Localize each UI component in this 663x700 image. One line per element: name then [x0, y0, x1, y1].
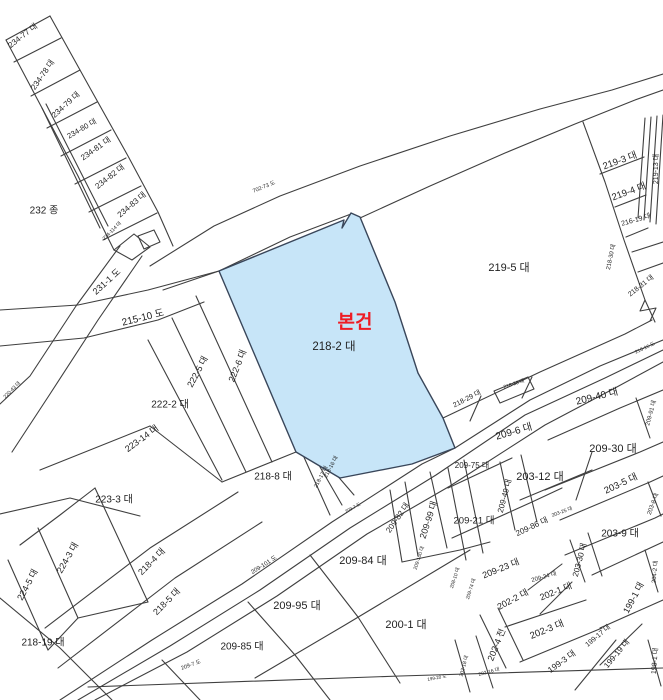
- parcel-label-224-3-대: 224-3 대: [55, 541, 81, 575]
- parcel-label-209-24-대: 209-24 대: [530, 569, 557, 584]
- parcel-label-209-85-대: 209-85 대: [220, 641, 263, 653]
- parcel-boundary: [150, 426, 222, 482]
- parcel-label-209-75-대: 209-75 대: [455, 461, 490, 470]
- parcel-label-204-2-대: 204-2 대: [650, 560, 660, 583]
- parcel-label-202-3-대: 202-3 대: [528, 618, 565, 642]
- cadastral-map-canvas: 본건218-2 대 234-77 대234-78 대234-79 대234-80…: [0, 0, 663, 700]
- parcel-label-209-23-대: 209-23 대: [481, 557, 521, 581]
- parcel-boundary: [583, 122, 655, 322]
- parcel-label-218-4-대: 218-4 대: [136, 546, 167, 577]
- parcel-label-209-6-대: 209-6 대: [494, 421, 533, 443]
- parcel-label-234-78-대: 234-78 대: [29, 58, 56, 91]
- parcel-label-218-30-대: 218-30 대: [604, 243, 617, 270]
- parcel-boundary: [0, 302, 204, 346]
- parcel-label-216-19-대: 216-19 대: [620, 212, 651, 228]
- parcel-label-222-5-대: 222-5 대: [185, 354, 210, 389]
- parcel-label-209-82-대: 209-82 대: [384, 501, 411, 534]
- parcel-label-218-19-대: 218-19 대: [21, 637, 64, 649]
- parcel-label-209-7-도: 209-7 도: [180, 658, 202, 672]
- parcel-label-702-73-도: 702-73 도: [252, 179, 277, 194]
- parcel-label-202-2-대: 202-2 대: [495, 587, 530, 612]
- parcel-label-219-3-대: 219-3 대: [601, 150, 638, 173]
- parcel-boundary: [443, 320, 652, 418]
- parcel-label-222-6-대: 222-6 대: [226, 348, 248, 383]
- parcel-boundary: [521, 455, 537, 522]
- parcel-label-208-10-대: 208-10 대: [448, 566, 461, 589]
- parcel-label-219-5-대: 219-5 대: [488, 261, 529, 274]
- parcel-label-234-81-대: 234-81 대: [79, 135, 112, 162]
- parcel-label-209-7-도: 209-7 도: [344, 502, 361, 514]
- parcel-boundary: [588, 533, 602, 576]
- parcel-boundary: [405, 482, 418, 556]
- subject-parcel-group: 본건218-2 대: [219, 213, 455, 478]
- parcel-label-209-30-대: 209-30 대: [589, 442, 636, 455]
- parcel-label-234-77-대: 234-77 대: [6, 22, 39, 50]
- parcel-label-223-14-대: 223-14 대: [123, 423, 160, 454]
- subject-parcel-number: 218-2 대: [312, 340, 355, 353]
- parcel-label-218-8-대: 218-8 대: [254, 471, 292, 483]
- parcel-label-219-4-대: 219-4 대: [610, 181, 647, 204]
- parcel-label-218-31-대: 218-31 대: [627, 273, 656, 298]
- parcel-label-200-1-대: 200-1 대: [385, 618, 426, 631]
- parcel-label-203-12-대: 203-12 대: [516, 470, 563, 483]
- parcel-label-234-80-대: 234-80 대: [65, 117, 98, 141]
- parcel-label-215-10-도: 215-10 도: [121, 308, 166, 329]
- parcel-label-203-8-대: 203-8 대: [645, 492, 660, 516]
- parcel-boundary: [638, 118, 645, 218]
- parcel-label-218-16-도: 218-16 도: [634, 341, 656, 356]
- parcel-label-219-13-대: 219-13 대: [652, 154, 660, 184]
- parcel-label-234-83-대: 234-83 대: [116, 190, 148, 219]
- parcel-boundary: [78, 602, 148, 618]
- parcel-label-203-9-대: 203-9 대: [601, 528, 639, 540]
- parcel-label-199-17-대: 199-17 대: [584, 623, 612, 649]
- parcel-label-220-43-대: 220-43 대: [2, 380, 22, 400]
- parcel-label-202-1-대: 202-1 대: [538, 580, 573, 602]
- parcel-label-209-84-대: 209-84 대: [339, 554, 386, 567]
- parcel-label-209-21-대: 209-21 대: [454, 516, 495, 527]
- parcel-label-222-2-대: 222-2 대: [151, 399, 189, 411]
- parcel-boundary: [638, 263, 663, 272]
- parcel-boundary: [0, 598, 112, 700]
- parcel-label-234-79-대: 234-79 대: [50, 90, 82, 120]
- parcel-label-209-74-대: 209-74 대: [464, 577, 477, 600]
- parcel-label-209-101-도: 209-101 도: [250, 554, 279, 576]
- parcel-boundary: [88, 668, 663, 687]
- parcel-label-209-95-대: 209-95 대: [273, 599, 320, 612]
- parcel-boundary: [20, 488, 95, 545]
- parcel-boundary: [632, 242, 663, 252]
- parcel-boundary: [12, 256, 142, 452]
- parcel-label-232-종: 232 종: [30, 205, 59, 217]
- parcel-boundary: [0, 246, 120, 404]
- parcel-label-203-25-대: 203-25 대: [551, 505, 574, 519]
- subject-marker-label: 본건: [338, 311, 373, 333]
- parcel-label-218-5-대: 218-5 대: [151, 586, 182, 617]
- parcel-label-203-5-대: 203-5 대: [603, 471, 640, 496]
- parcel-label-203-30-대: 203-30 대: [571, 542, 589, 578]
- parcel-boundary: [505, 600, 586, 627]
- parcel-boundary: [255, 550, 470, 678]
- parcel-boundary: [626, 228, 648, 237]
- parcel-boundary: [464, 460, 483, 553]
- parcel-label-209-99-대: 209-99 대: [418, 500, 440, 540]
- parcel-boundary: [172, 318, 246, 472]
- parcel-boundary: [150, 74, 663, 266]
- parcel-label-199-19-대: 199-19 대: [602, 638, 631, 670]
- parcel-boundary: [644, 117, 651, 220]
- parcel-label-218-38-대: 218-38 대: [503, 377, 526, 390]
- parcel-label-209-86-대: 209-86 대: [514, 515, 549, 538]
- cadastral-map: 본건218-2 대 234-77 대234-78 대234-79 대234-80…: [0, 0, 663, 700]
- parcel-label-209-91-대: 209-91 대: [643, 399, 657, 426]
- parcel-label-223-3-대: 223-3 대: [95, 494, 133, 506]
